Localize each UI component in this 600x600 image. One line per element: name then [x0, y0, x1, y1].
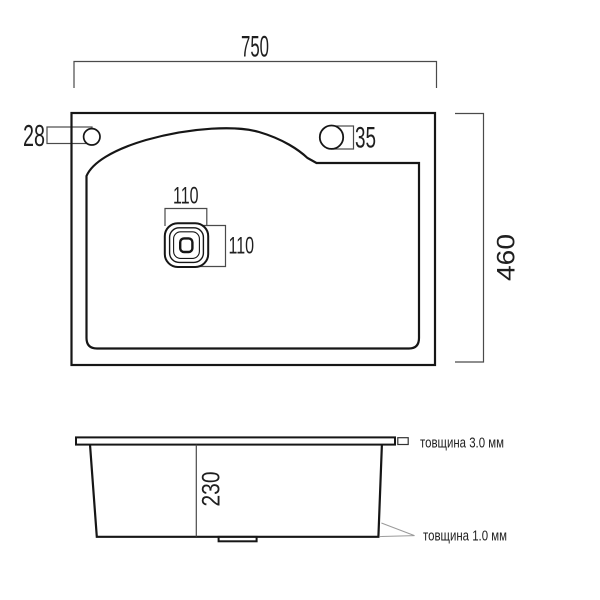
drain-height-dimension-label: 110 — [229, 233, 255, 260]
left-faucet-hole — [84, 129, 100, 145]
right-hole-dimension-label: 35 — [355, 122, 376, 155]
left-hole-dimension-label: 28 — [23, 118, 45, 153]
depth-dimension-label: 230 — [198, 472, 226, 507]
body-profile — [90, 445, 382, 537]
drain-stub — [219, 537, 257, 541]
drain-width-dimension-label: 110 — [173, 183, 199, 210]
drain-hole — [180, 238, 192, 252]
wall-thickness-note: товщина 1.0 мм — [423, 529, 507, 545]
height-dimension-bracket — [455, 114, 484, 363]
top-view: 750 460 28 35 110 110 — [23, 31, 521, 366]
right-faucet-hole — [320, 126, 343, 149]
width-dimension-bracket — [74, 62, 437, 89]
rim-profile — [76, 437, 395, 444]
wall-thickness-leader — [379, 523, 414, 537]
height-dimension-label: 460 — [493, 234, 521, 281]
rim-thickness-note: товщина 3.0 мм — [420, 436, 504, 452]
rim-thickness-sample-box — [398, 438, 408, 445]
width-dimension-label: 750 — [241, 31, 269, 64]
side-view: товщина 3.0 мм 230 товщина 1.0 мм — [76, 436, 507, 545]
sink-technical-drawing: 750 460 28 35 110 110 товщина — [0, 0, 600, 600]
drawing-canvas: 750 460 28 35 110 110 товщина — [0, 0, 600, 600]
